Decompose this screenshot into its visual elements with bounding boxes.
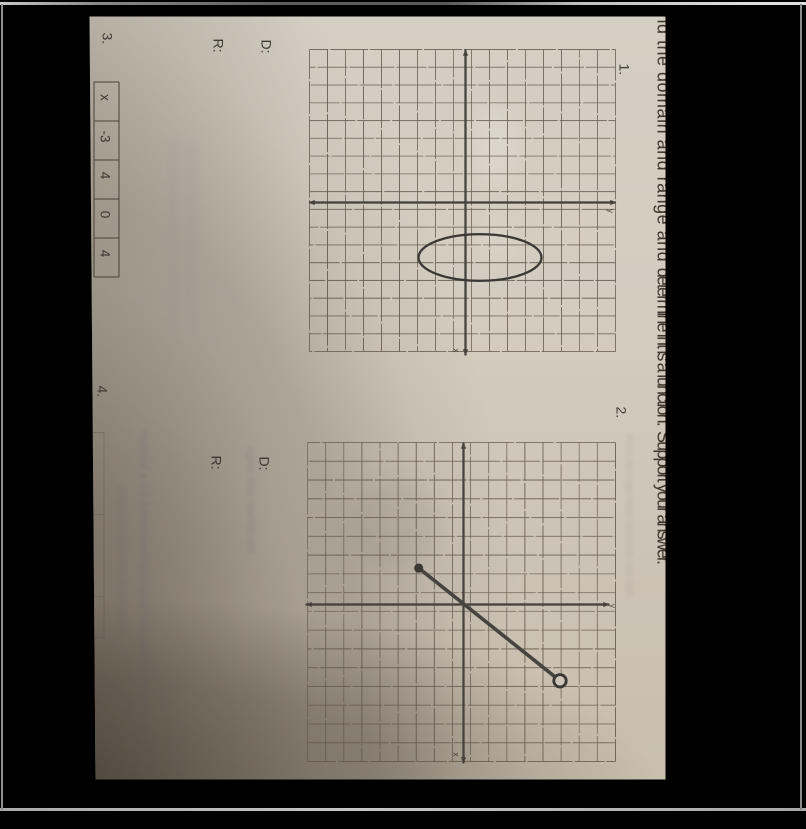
svg-text:y: y <box>606 209 615 213</box>
svg-text:4: 4 <box>97 171 112 179</box>
svg-text:y: y <box>608 604 617 608</box>
svg-text:-3: -3 <box>97 130 112 142</box>
svg-text:x: x <box>451 348 460 352</box>
svg-text:x: x <box>451 752 460 756</box>
svg-text:0: 0 <box>97 210 112 218</box>
svg-text:x: x <box>97 94 112 101</box>
svg-text:4: 4 <box>97 249 112 257</box>
